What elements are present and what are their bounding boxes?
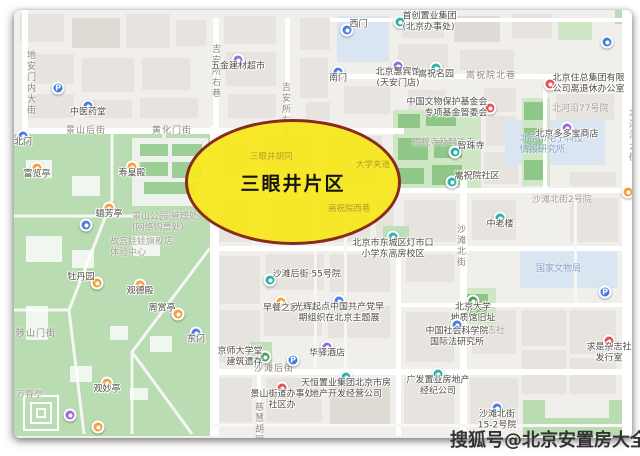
poi-label: 智珠寺: [458, 142, 485, 153]
map-poi-marker[interactable]: 沙滩后街·55号院: [264, 274, 277, 287]
poi-dot-icon: [345, 28, 349, 32]
watermark: 搜狐号@北京安置房大全: [450, 426, 640, 452]
map-poi-marker[interactable]: 中老楼: [494, 212, 507, 225]
poi-label: 北京惠宾馆 (天安门店): [375, 68, 420, 89]
map-poi-marker[interactable]: 首创置业集团 (北京办事处): [394, 16, 407, 29]
map-poi-marker[interactable]: 北京大学 地质馆旧址: [467, 295, 480, 308]
poi-label: 中国文物保护基金会 专项基金管委会: [406, 98, 487, 119]
poi-label: 天恒置业集团北京市房 地产开发经营公司: [301, 379, 391, 400]
poi-label: 沙滩后街·55号院: [273, 270, 341, 281]
poi-label: 周赏亭: [148, 304, 175, 315]
poi-label: 广发置业房地产 经纪公司: [406, 376, 469, 397]
poi-dot-icon: [548, 82, 552, 86]
page: { "page": { "watermark": "搜狐号@北京安置房大全" }…: [0, 0, 640, 456]
map-poi-marker[interactable]: 京师大学堂 建筑遗存: [259, 351, 272, 364]
poi-dot-icon: [488, 106, 492, 110]
area-label: 故宫娃娃旗舰店 体验中心: [110, 237, 173, 258]
map-poi-marker[interactable]: 景山街道办事处 社区办: [276, 382, 289, 395]
poi-label: 辑芳亭: [95, 210, 122, 221]
poi-dot-icon: [453, 150, 457, 154]
map-poi-marker[interactable]: 天恒置业集团北京市房 地产开发经营公司: [340, 371, 353, 384]
poi-label: 北京多多宝商店: [535, 130, 598, 141]
blue-poi-icon: [80, 219, 93, 232]
area-label: 景山公园·管理处 (网络购票处): [132, 212, 198, 233]
map-poi-marker[interactable]: 光辉起点中国共产党早 期组织在北京主题展: [333, 295, 346, 308]
map-poi-marker[interactable]: 牡丹园: [91, 277, 104, 290]
map-screenshot[interactable]: 地安门内大街景山后街黄化门街吉安所右巷吉安所左巷嵩祝院北巷北河沿大街沙滩北街沙滩…: [14, 10, 632, 438]
map-poi-marker[interactable]: 求是杂志社 发行室: [603, 335, 616, 348]
highlight-label: 三眼井片区: [240, 169, 345, 196]
orange-poi-icon: [622, 186, 633, 199]
poi-label: 中国社会科学院 国际法研究所: [425, 327, 488, 348]
map-poi-marker[interactable]: 辑芳亭: [103, 202, 116, 215]
poi-dot-icon: [626, 190, 630, 194]
faint-map-label: 嵩祝院西巷: [328, 202, 371, 214]
map-poi-marker[interactable]: 西门: [341, 24, 354, 37]
faint-map-label: 三眼井胡同: [250, 150, 293, 162]
poi-dot-icon: [398, 20, 402, 24]
purple-poi-icon: [64, 409, 77, 422]
map-poi-marker[interactable]: 广发置业房地产 经纪公司: [432, 368, 445, 381]
map-poi-marker[interactable]: 富览亭: [31, 162, 44, 175]
area-label: 万春亭: [16, 390, 43, 401]
map-poi-marker[interactable]: 东门: [190, 327, 203, 340]
street-label: 沙滩北街: [454, 224, 467, 268]
street-label: 景山后街: [66, 123, 106, 136]
park-poi-icon: P: [52, 82, 65, 95]
map-poi-marker[interactable]: 中国文物保护基金会 专项基金管委会: [484, 102, 497, 115]
map-poi-marker[interactable]: P: [599, 286, 612, 299]
street-label: 嵩祝院北巷: [466, 68, 516, 81]
map-poi-marker[interactable]: 周赏亭: [172, 308, 185, 321]
poi-label: 京师大学堂 建筑遗存: [217, 347, 262, 368]
street-label: 黄化门街: [152, 123, 192, 136]
map-poi-marker[interactable]: 早餐之家: [275, 296, 288, 309]
poi-label: 西门: [350, 20, 368, 31]
poi-dot-icon: [450, 180, 454, 184]
map-poi-marker[interactable]: 嵩祝名园: [430, 62, 443, 75]
poi-dot-icon: [605, 40, 609, 44]
map-poi-marker[interactable]: 观妙亭: [101, 377, 114, 390]
poi-dot-icon: [95, 281, 99, 285]
poi-label: 五金建材超市: [211, 62, 265, 73]
map-poi-marker[interactable]: 寿皇殿: [126, 161, 139, 174]
map-poi-marker[interactable]: 五金建材超市: [232, 54, 245, 67]
map-poi-marker[interactable]: [92, 421, 105, 434]
poi-dot-icon: [84, 223, 88, 227]
poi-label: 光辉起点中国共产党早 期组织在北京主题展: [294, 303, 384, 324]
poi-dot-icon: [68, 413, 72, 417]
map-poi-marker[interactable]: 北京多多宝商店: [561, 122, 574, 135]
map-poi-marker[interactable]: 中医药堂: [82, 100, 95, 113]
poi-label: 北门: [14, 138, 32, 149]
map-poi-marker[interactable]: [622, 186, 633, 199]
poi-label: 中老楼: [486, 220, 513, 231]
map-poi-marker[interactable]: 南门: [332, 66, 345, 79]
map-poi-marker[interactable]: P: [52, 82, 65, 95]
area-label: 北河沿77号院: [552, 104, 608, 115]
map-poi-marker[interactable]: 智珠寺: [449, 146, 462, 159]
poi-label: 北京住总集团有限 公司离退休办公室: [553, 74, 625, 95]
map-poi-marker[interactable]: P: [287, 354, 300, 367]
poi-dot-icon: [176, 312, 180, 316]
area-label: 沙滩北街2号院: [532, 195, 592, 206]
highlight-ellipse: 三眼井片区: [185, 119, 401, 245]
map-poi-marker[interactable]: 北京惠宾馆 (天安门店): [392, 60, 405, 73]
street-label: 北河沿大街: [626, 108, 632, 163]
map-poi-marker[interactable]: [601, 36, 614, 49]
map-poi-marker[interactable]: 华驿酒店: [321, 341, 334, 354]
poi-label: 牡丹园: [67, 273, 94, 284]
map-poi-marker[interactable]: 北京市东城区灯市口 小学东高房校区: [387, 231, 400, 244]
poi-label: 嵩祝名园: [418, 70, 454, 81]
map-poi-marker[interactable]: 中国社会科学院 国际法研究所: [451, 319, 464, 332]
map-poi-marker[interactable]: 北门: [17, 130, 30, 143]
poi-label: 华驿酒店: [309, 349, 345, 360]
poi-label: 观妙亭: [93, 385, 120, 396]
poi-label: 嵩祝院社区: [455, 172, 500, 183]
poi-label: 观德殿: [126, 287, 153, 298]
map-poi-marker[interactable]: [64, 409, 77, 422]
poi-label: 东门: [187, 335, 205, 346]
street-label: 陟山门街: [16, 326, 56, 339]
park-poi-icon: P: [599, 286, 612, 299]
map-poi-marker[interactable]: 沙滩北街 15-2号院: [491, 402, 504, 415]
faint-map-label: 大学夹道: [356, 158, 390, 170]
poi-label: 首创置业集团 (北京办事处): [403, 12, 457, 33]
poi-label: 北京市东城区灯市口 小学东高房校区: [352, 239, 433, 260]
poi-dot-icon: [96, 425, 100, 429]
poi-label: 南门: [329, 74, 347, 85]
map-poi-marker[interactable]: [80, 219, 93, 232]
map-poi-marker[interactable]: 嵩祝院社区: [446, 176, 459, 189]
park-poi-icon: P: [287, 354, 300, 367]
blue-poi-icon: [601, 36, 614, 49]
area-label: 国家文物局: [536, 264, 581, 275]
poi-label: 寿皇殿: [118, 169, 145, 180]
poi-label: 富览亭: [23, 170, 50, 181]
poi-label: 中医药堂: [70, 108, 106, 119]
map-poi-marker[interactable]: 观德殿: [134, 279, 147, 292]
poi-dot-icon: [268, 278, 272, 282]
poi-dot-icon: [263, 355, 267, 359]
orange-poi-icon: [92, 421, 105, 434]
poi-label: 求是杂志社 发行室: [586, 343, 631, 364]
map-poi-marker[interactable]: 北京住总集团有限 公司离退休办公室: [544, 78, 557, 91]
street-label: 地安门内大街: [24, 50, 37, 116]
